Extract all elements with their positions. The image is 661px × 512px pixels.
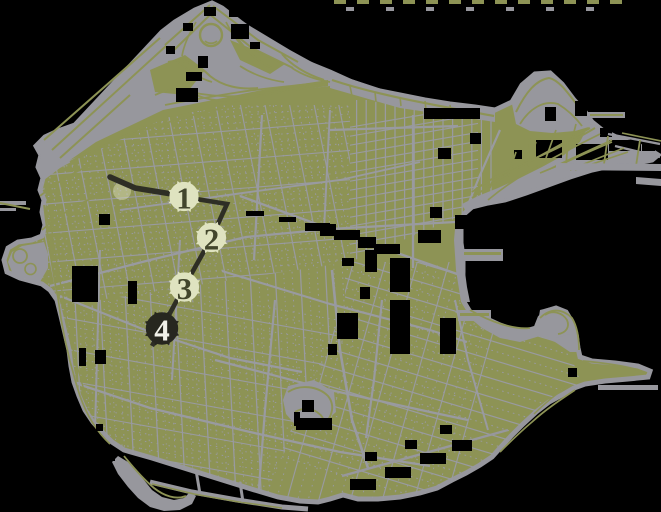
- svg-text:2: 2: [204, 222, 220, 257]
- svg-text:3: 3: [177, 271, 193, 306]
- svg-text:4: 4: [154, 313, 170, 348]
- svg-text:1: 1: [176, 181, 192, 216]
